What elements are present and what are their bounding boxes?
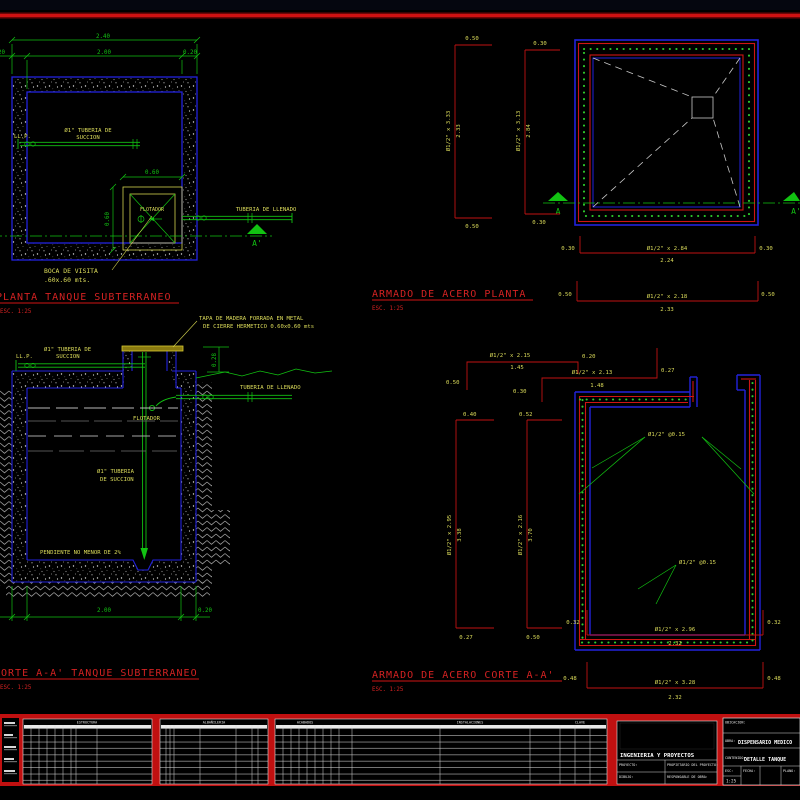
schedule-table-1: ESTRUCTURA (23, 719, 152, 784)
dim-label: 2.24 (660, 258, 674, 264)
esc-value: 1:25 (726, 779, 737, 784)
rebar-label: Ø1/2" x 2.96 (655, 626, 695, 633)
armado-planta-rebar-dots (584, 49, 749, 216)
view-scale: ESC. 1:25 (372, 687, 404, 693)
top-border-glow (0, 13, 800, 15)
pipe-label: LL.P. (16, 354, 33, 360)
field-label: DIBUJO: (619, 775, 633, 779)
table-header: ACABADOS (297, 721, 313, 725)
dim-label: 0.30 (759, 246, 772, 252)
dim-label: 0.30 (533, 41, 546, 47)
dim-label: 2.84 (526, 124, 532, 138)
view-title: ARMADO DE ACERO PLANTA (372, 289, 526, 300)
dim-label: 2.32 (668, 695, 681, 701)
dim-label: 0.20 (198, 608, 212, 614)
dim-label: 0.50 (465, 36, 478, 42)
boca-callout: .60x.60 mts. (44, 276, 90, 284)
pipe-label: Ø1" TUBERIA (97, 468, 135, 475)
title-block: ESTRUCTURA ALBAÑILERIA (0, 714, 800, 786)
pipe-label: TUBERIA DE LLENADO (240, 385, 301, 391)
dim-label: 1.48 (590, 383, 604, 389)
field-label: CONTENIDO: (725, 756, 745, 760)
field-label: PROYECTO: (619, 763, 637, 767)
armado-corte-outline (575, 375, 760, 650)
sheet-info-panel: UBICACION: OBRA: DISPENSARIO MEDICO CONT… (723, 718, 800, 785)
dim-label: 0.30 (532, 220, 545, 226)
armado-corte-rebar (579, 379, 756, 646)
cad-sheet: 2.40 2.00 0.20 0.20 LL.P. Ø1" TUBERIA DE… (0, 0, 800, 800)
field-label: PROPIETARIO DEL PROYECTO: (667, 763, 718, 767)
table-header: CLAVE (575, 721, 585, 725)
legend-panel (2, 718, 19, 782)
rebar-label: Ø1/2" x 2.18 (647, 293, 688, 300)
pipe-label: Ø1" TUBERIA DE (44, 346, 92, 353)
dim-label: 0.50 (526, 635, 539, 641)
dim-label: 0.60 (145, 170, 159, 176)
rebar-label: Ø1/2" x 2.16 (517, 515, 524, 555)
spacing-label: Ø1/2" @0.15 (679, 559, 716, 566)
schedule-table-3: ACABADOS INSTALACIONES CLAVE (275, 719, 607, 784)
dim-label: 0.32 (767, 620, 780, 626)
dim-label: 0.27 (459, 635, 472, 641)
table-header: ALBAÑILERIA (203, 720, 225, 725)
spacing-label: Ø1/2" @0.15 (648, 431, 685, 438)
tapa-callout: TAPA DE MADERA FORRADA EN METAL (199, 316, 304, 322)
armado-corte-rebar-dots (580, 383, 753, 643)
top-border-line (0, 14, 800, 17)
firm-name: INGENIERIA Y PROYECTOS (620, 753, 695, 759)
armado-planta-outer-blue (575, 40, 758, 225)
sheet-frame (0, 0, 800, 19)
corte-ground-line (196, 369, 332, 378)
dim-label: 0.52 (519, 412, 532, 418)
table-header: INSTALACIONES (457, 721, 484, 725)
dim-label: 2.33 (456, 124, 462, 137)
section-marker-label: A (556, 207, 561, 216)
dim-label: 2.00 (97, 50, 111, 56)
view-scale: ESC. 1:25 (0, 685, 32, 691)
dim-label: 0.50 (446, 380, 459, 386)
view-scale: ESC. 1:25 (372, 306, 404, 312)
dim-label: 3.70 (528, 528, 534, 541)
armado-planta-inner-blue (593, 58, 740, 207)
rebar-label: Ø1/2" x 2.95 (446, 515, 453, 555)
pipe-label: Ø1" TUBERIA DE (64, 127, 112, 134)
dim-label: 2.32 (668, 641, 681, 647)
view-title: PLANTA TANQUE SUBTERRANEO (0, 292, 172, 303)
dim-label: 0.20 (582, 354, 595, 360)
spacing-leaders-top (579, 437, 754, 494)
view-scale: ESC. 1:25 (0, 309, 32, 315)
dim-label: 0.48 (563, 676, 577, 682)
section-marker-label: A' (252, 239, 262, 248)
dim-label: 2.33 (660, 307, 673, 313)
armado-planta-red-outer (579, 44, 755, 222)
contenido-value: DETALLE TANQUE (744, 757, 786, 763)
field-label: UBICACION: (725, 721, 745, 725)
pipe-label: SUCCION (76, 135, 100, 141)
view-title: CORTE A-A' TANQUE SUBTERRANEO (0, 668, 198, 679)
tapa-leader-line (173, 321, 197, 347)
obra-value: DISPENSARIO MEDICO (738, 740, 792, 746)
field-label: PLANO: (783, 769, 795, 773)
rebar-label: Ø1/2" x 2.15 (490, 352, 530, 359)
planta-section-marker (247, 224, 267, 234)
view-title: ARMADO DE ACERO CORTE A-A' (372, 670, 555, 681)
dim-label: 0.50 (761, 292, 774, 298)
dim-label: 0.30 (513, 389, 526, 395)
planta-fill-pipe (182, 213, 292, 223)
pipe-label: DE SUCCION (100, 477, 134, 483)
field-label: ESC: (725, 769, 733, 773)
section-marker-label: A' (791, 207, 800, 216)
dim-label: 1.45 (510, 365, 523, 371)
planta-boca-de-visita (123, 187, 182, 250)
armado-planta-diagonals (593, 58, 740, 207)
armado-corte-vdim2 (527, 420, 562, 628)
planta-wall-hatch (12, 77, 197, 260)
dim-label: 0.30 (561, 246, 574, 252)
top-margin-band (0, 0, 800, 10)
armado-corte-vdim1 (456, 420, 494, 628)
dim-label: 0.50 (558, 292, 571, 298)
firm-panel: INGENIERIA Y PROYECTOS PROYECTO: PROPIET… (617, 721, 718, 784)
dim-label: 2.40 (96, 34, 110, 40)
pendiente-label: PENDIENTE NO MENOR DE 2% (40, 550, 121, 556)
schedule-table-2: ALBAÑILERIA (160, 719, 268, 784)
rebar-label: Ø1/2" x 2.13 (572, 369, 612, 376)
pipe-label: LL.P. (14, 134, 31, 140)
armado-planta-center-square (692, 97, 713, 118)
table-header: ESTRUCTURA (77, 721, 97, 725)
section-marker (548, 192, 568, 201)
tapa-callout: DE CIERRE HERMETICO 0.60x0.60 mts (203, 324, 314, 330)
field-label: OBRA: (725, 739, 735, 743)
corte-concrete-hatch (12, 351, 196, 582)
boca-callout: BOCA DE VISITA (44, 267, 98, 275)
planta-outer-wall (12, 77, 197, 260)
dim-label: 0.27 (661, 368, 674, 374)
armado-planta-red-inner (590, 55, 743, 210)
dim-label: 0.20 (183, 50, 197, 56)
section-marker (783, 192, 800, 201)
corte-view: TAPA DE MADERA FORRADA EN METAL DE CIERR… (0, 316, 332, 691)
corte-tapa (122, 346, 183, 351)
top-border-glow2 (0, 17, 800, 19)
dim-label: 3.38 (457, 528, 463, 542)
dim-label: 0.50 (465, 224, 478, 230)
dim-label: 0.48 (767, 676, 781, 682)
rebar-label: Ø1/2" x 3.13 (515, 111, 522, 151)
dim-label: 0.32 (566, 620, 579, 626)
rebar-label: Ø1/2" x 3.33 (445, 111, 452, 151)
field-label: RESPONSABLE DE OBRA: (667, 775, 708, 779)
corte-water-lines (28, 408, 178, 451)
cad-drawing-canvas: 2.40 2.00 0.20 0.20 LL.P. Ø1" TUBERIA DE… (0, 0, 800, 800)
planta-view: 2.40 2.00 0.20 0.20 LL.P. Ø1" TUBERIA DE… (0, 34, 297, 315)
rebar-label: Ø1/2" x 2.84 (647, 245, 688, 252)
dim-label: 0.20 (0, 50, 5, 56)
spacing-leaders-bottom (638, 565, 676, 604)
dim-label: 2.00 (97, 608, 111, 614)
field-label: FECHA: (743, 769, 755, 773)
armado-corte-view: Ø1/2" @0.15 Ø1/2" @0.15 Ø1/2" x 2.15 1.4… (372, 348, 781, 701)
flotador-label: FLOTADOR (140, 207, 165, 213)
pipe-label: SUCCION (56, 354, 80, 360)
dim-label: 0.28 (212, 353, 218, 367)
dim-label: 0.60 (105, 212, 111, 226)
pipe-label: TUBERIA DE LLENADO (236, 207, 297, 213)
logo-area (620, 723, 714, 749)
rebar-label: Ø1/2" x 3.28 (655, 679, 696, 686)
armado-planta-view: A A' 0.50 0.50 Ø1/2" x 3.33 2.33 0.30 0.… (372, 36, 800, 313)
dim-label: 0.40 (463, 412, 476, 418)
